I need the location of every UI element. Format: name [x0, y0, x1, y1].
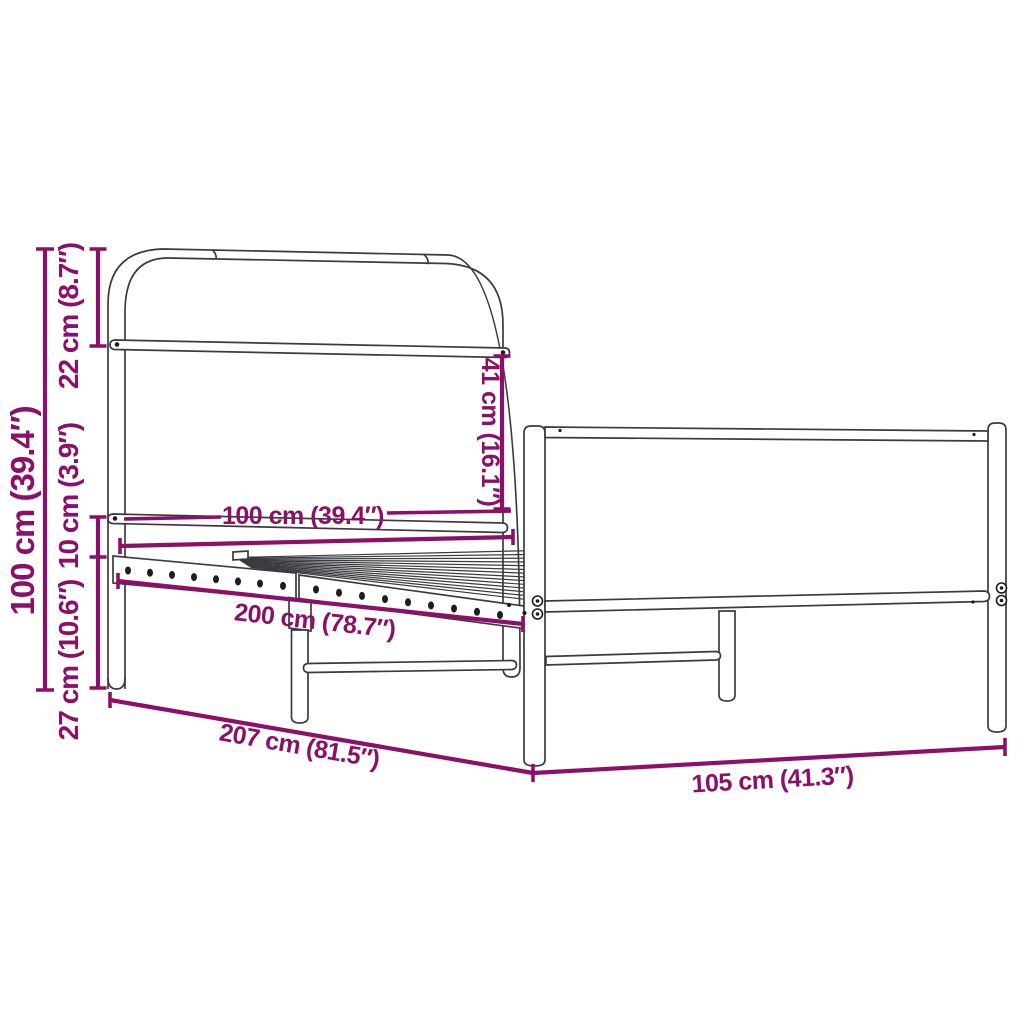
- dimension-label-headboard-top: 22 cm (8.7″): [53, 243, 84, 389]
- slat-platform: [113, 551, 735, 724]
- dimension-total-height: 100 cm (39.4″): [4, 249, 54, 690]
- stretcher-bar-foot-side: [546, 652, 721, 666]
- screw-icon: [115, 342, 120, 347]
- footboard-top-rail: [545, 427, 988, 441]
- screw-icon: [522, 611, 526, 615]
- headboard-upper-rail: [110, 340, 510, 358]
- slat-end-cap: [233, 551, 248, 560]
- dimension-label-total-width: 105 cm (41.3″): [691, 762, 855, 799]
- dimension-label-total-length: 207 cm (81.5″): [217, 718, 382, 773]
- dimension-label-headboard-gap: 41 cm (16.1″): [476, 358, 504, 507]
- screw-icon: [113, 516, 118, 521]
- footboard-right-post: [988, 423, 1006, 732]
- footboard-left-post: [524, 426, 545, 766]
- middle-support-leg-front: [292, 630, 309, 723]
- dimension-total-width: 105 cm (41.3″): [533, 738, 1005, 799]
- dimension-rail-height: 10 cm (3.9″) 27 cm (10.6″): [53, 423, 107, 740]
- dimension-label-total-height: 100 cm (39.4″): [4, 406, 41, 615]
- dimension-label-under-bed-clearance: 27 cm (10.6″): [53, 580, 84, 741]
- dimension-headboard-top: 22 cm (8.7″): [53, 243, 107, 389]
- middle-support-leg-rear: [719, 611, 735, 701]
- screw-icon: [558, 429, 561, 432]
- dimension-label-rail-height: 10 cm (3.9″): [53, 423, 84, 569]
- bed-frame-dimension-diagram: 100 cm (39.4″) 22 cm (8.7″) 10 cm (3.9″)…: [0, 0, 1024, 1024]
- dimension-label-inner-width: 100 cm (39.4″): [222, 502, 384, 530]
- screw-icon: [501, 350, 506, 355]
- tube-joint-mark-left: [212, 250, 216, 260]
- stretcher-bar-head-side: [304, 661, 517, 673]
- footboard-bottom-rail: [545, 591, 990, 612]
- headboard-left-leg-foot: [108, 678, 125, 689]
- dimension-diagram-page: 100 cm (39.4″) 22 cm (8.7″) 10 cm (3.9″)…: [0, 0, 1024, 1024]
- screw-icon: [972, 433, 975, 436]
- footboard: [507, 423, 1007, 766]
- screw-icon: [507, 603, 511, 607]
- screw-icon: [971, 600, 974, 603]
- dimension-total-length: 207 cm (81.5″): [110, 692, 533, 782]
